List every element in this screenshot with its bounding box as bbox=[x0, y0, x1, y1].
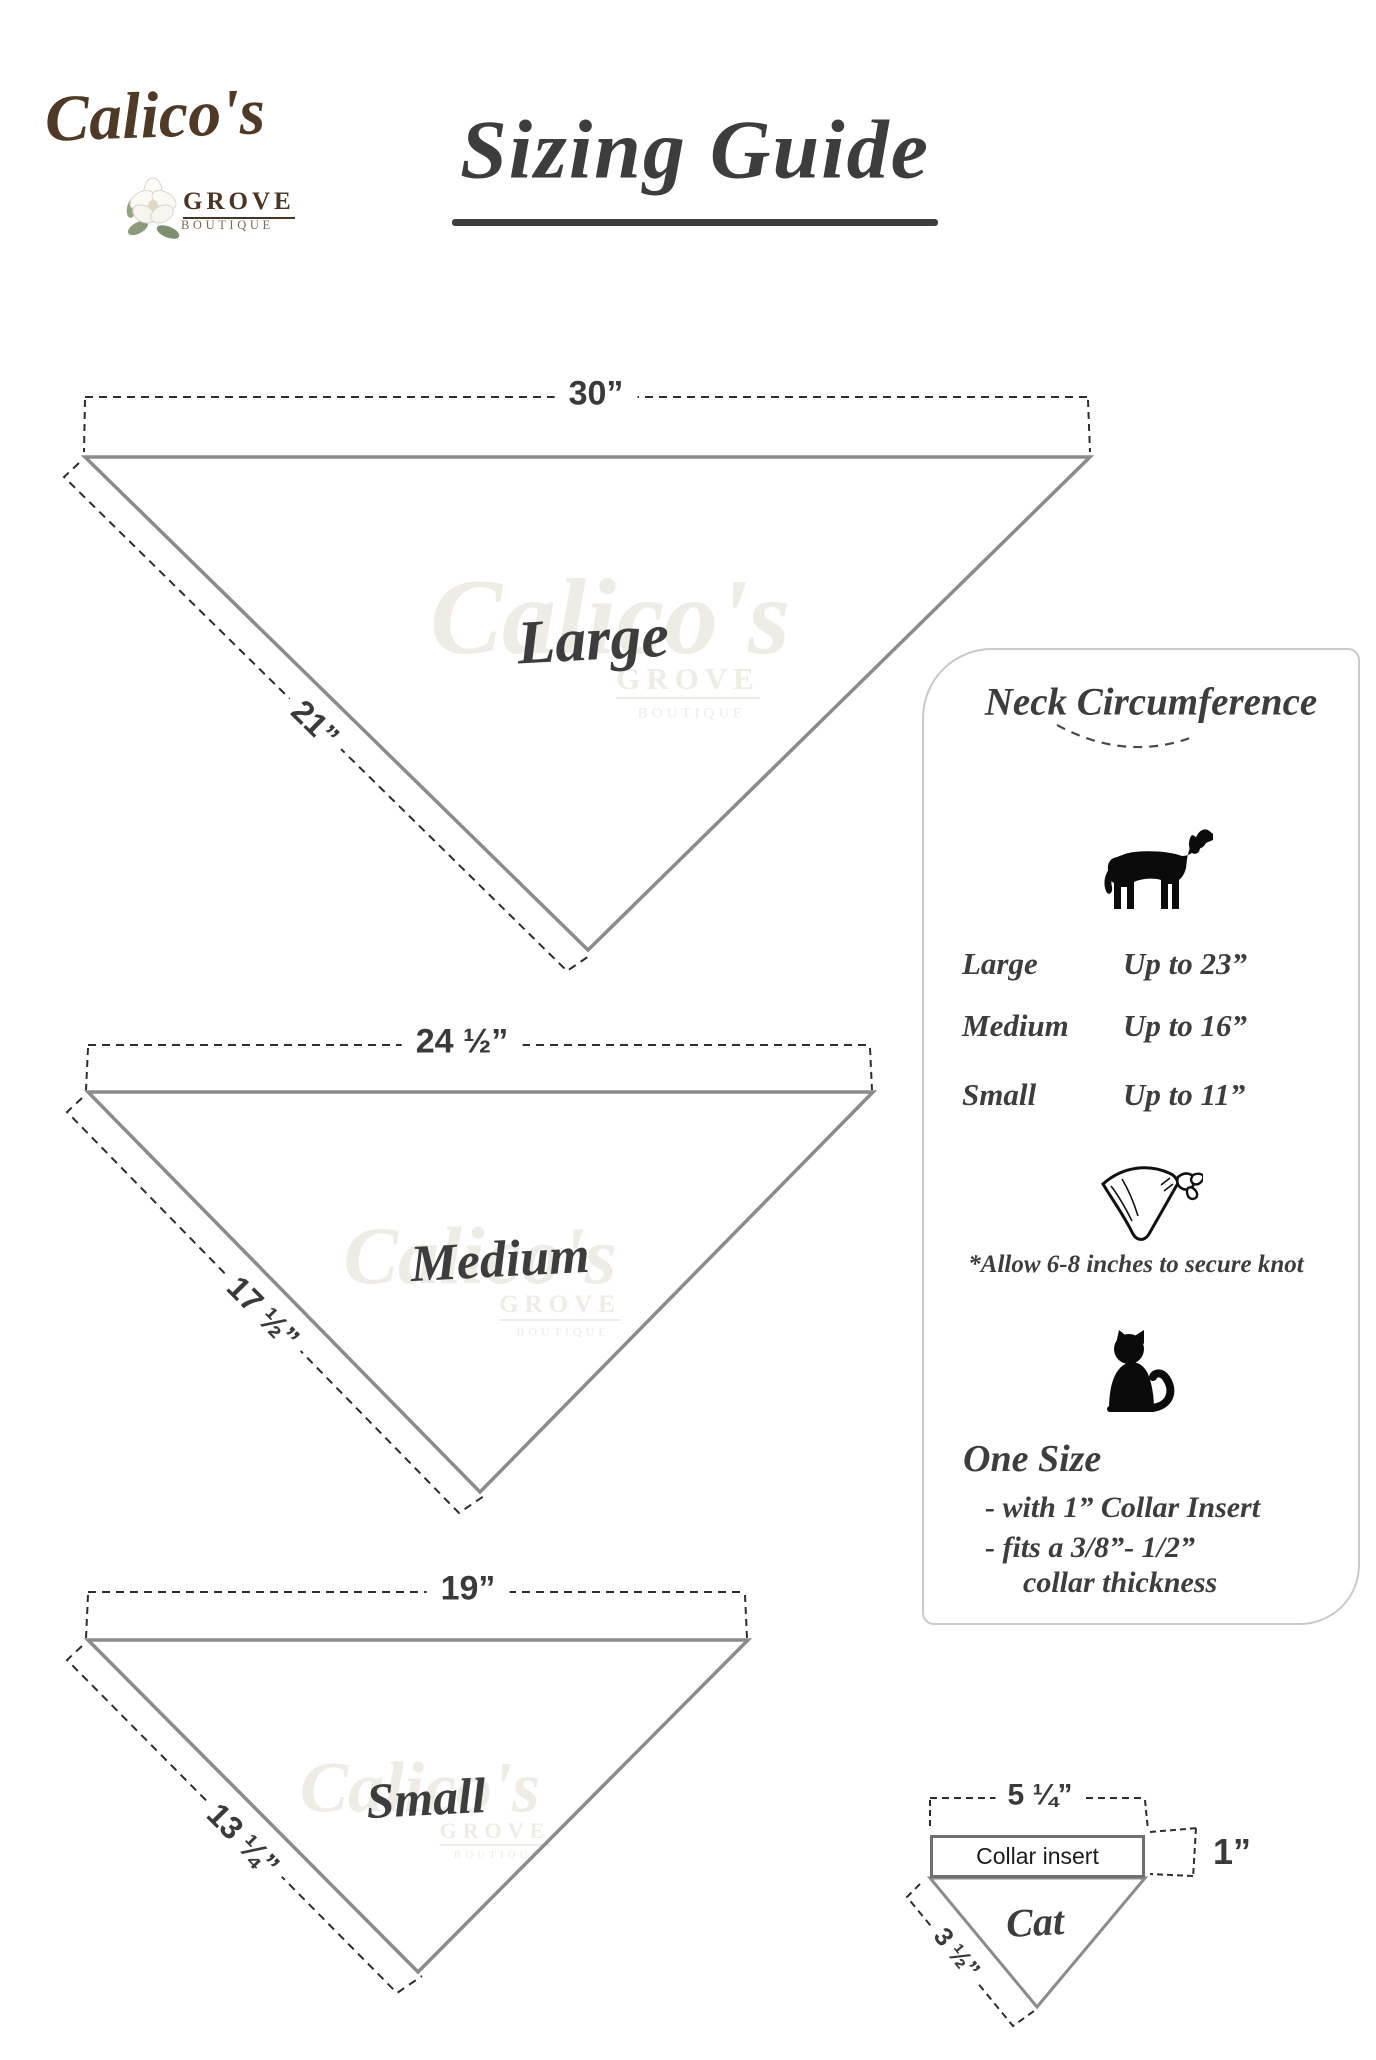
row-medium-limit: Up to 16” bbox=[1123, 1008, 1247, 1044]
knot-note: *Allow 6-8 inches to secure knot bbox=[968, 1251, 1303, 1279]
logo-grove-text: GROVE bbox=[183, 188, 295, 219]
flower-icon bbox=[124, 170, 182, 248]
bandana-icon bbox=[1095, 1158, 1203, 1246]
collar-insert-label: Collar insert bbox=[976, 1843, 1099, 1870]
large-width-label: 30” bbox=[555, 375, 638, 412]
logo-boutique-text: BOUTIQUE bbox=[181, 218, 274, 233]
cat-width-label: 5 ¼” bbox=[995, 1779, 1084, 1812]
collar-insert-box: Collar insert bbox=[930, 1835, 1145, 1878]
one-size-heading: One Size bbox=[963, 1437, 1101, 1481]
one-size-line2: - fits a 3/8”- 1/2” bbox=[985, 1531, 1195, 1565]
one-size-line1: - with 1” Collar Insert bbox=[985, 1491, 1260, 1525]
page-title: Sizing Guide bbox=[460, 102, 930, 199]
cat-size-label: Cat bbox=[1005, 1897, 1065, 1947]
cat-insert-height-bracket bbox=[1150, 1828, 1198, 1878]
dog-icon bbox=[1095, 823, 1213, 915]
row-small-limit: Up to 11” bbox=[1123, 1077, 1245, 1113]
medium-width-label: 24 ½” bbox=[402, 1023, 523, 1060]
small-size-label: Small bbox=[365, 1766, 487, 1830]
neck-measure-arc bbox=[1057, 725, 1193, 747]
panel-heading: Neck Circumference bbox=[985, 680, 1318, 725]
sizing-guide-page: Calico's GROVE BOUTIQUE Calico's GROVE B… bbox=[0, 0, 1376, 2060]
small-width-label: 19” bbox=[427, 1570, 510, 1607]
one-size-line3: collar thickness bbox=[1023, 1566, 1217, 1600]
cat-icon bbox=[1100, 1330, 1178, 1414]
row-medium-size: Medium bbox=[962, 1008, 1069, 1044]
title-underline bbox=[452, 219, 938, 226]
small-dimension-ticks bbox=[86, 1595, 747, 1638]
cat-insert-height-label: 1” bbox=[1213, 1832, 1251, 1872]
large-triangle-outline bbox=[85, 457, 1090, 950]
row-large-size: Large bbox=[962, 946, 1038, 982]
medium-size-label: Medium bbox=[409, 1226, 591, 1294]
row-large-limit: Up to 23” bbox=[1123, 946, 1247, 982]
large-size-label: Large bbox=[515, 601, 670, 680]
row-small-size: Small bbox=[962, 1077, 1036, 1113]
logo-brand-text: Calico's bbox=[44, 74, 267, 158]
medium-triangle-outline bbox=[88, 1092, 873, 1492]
